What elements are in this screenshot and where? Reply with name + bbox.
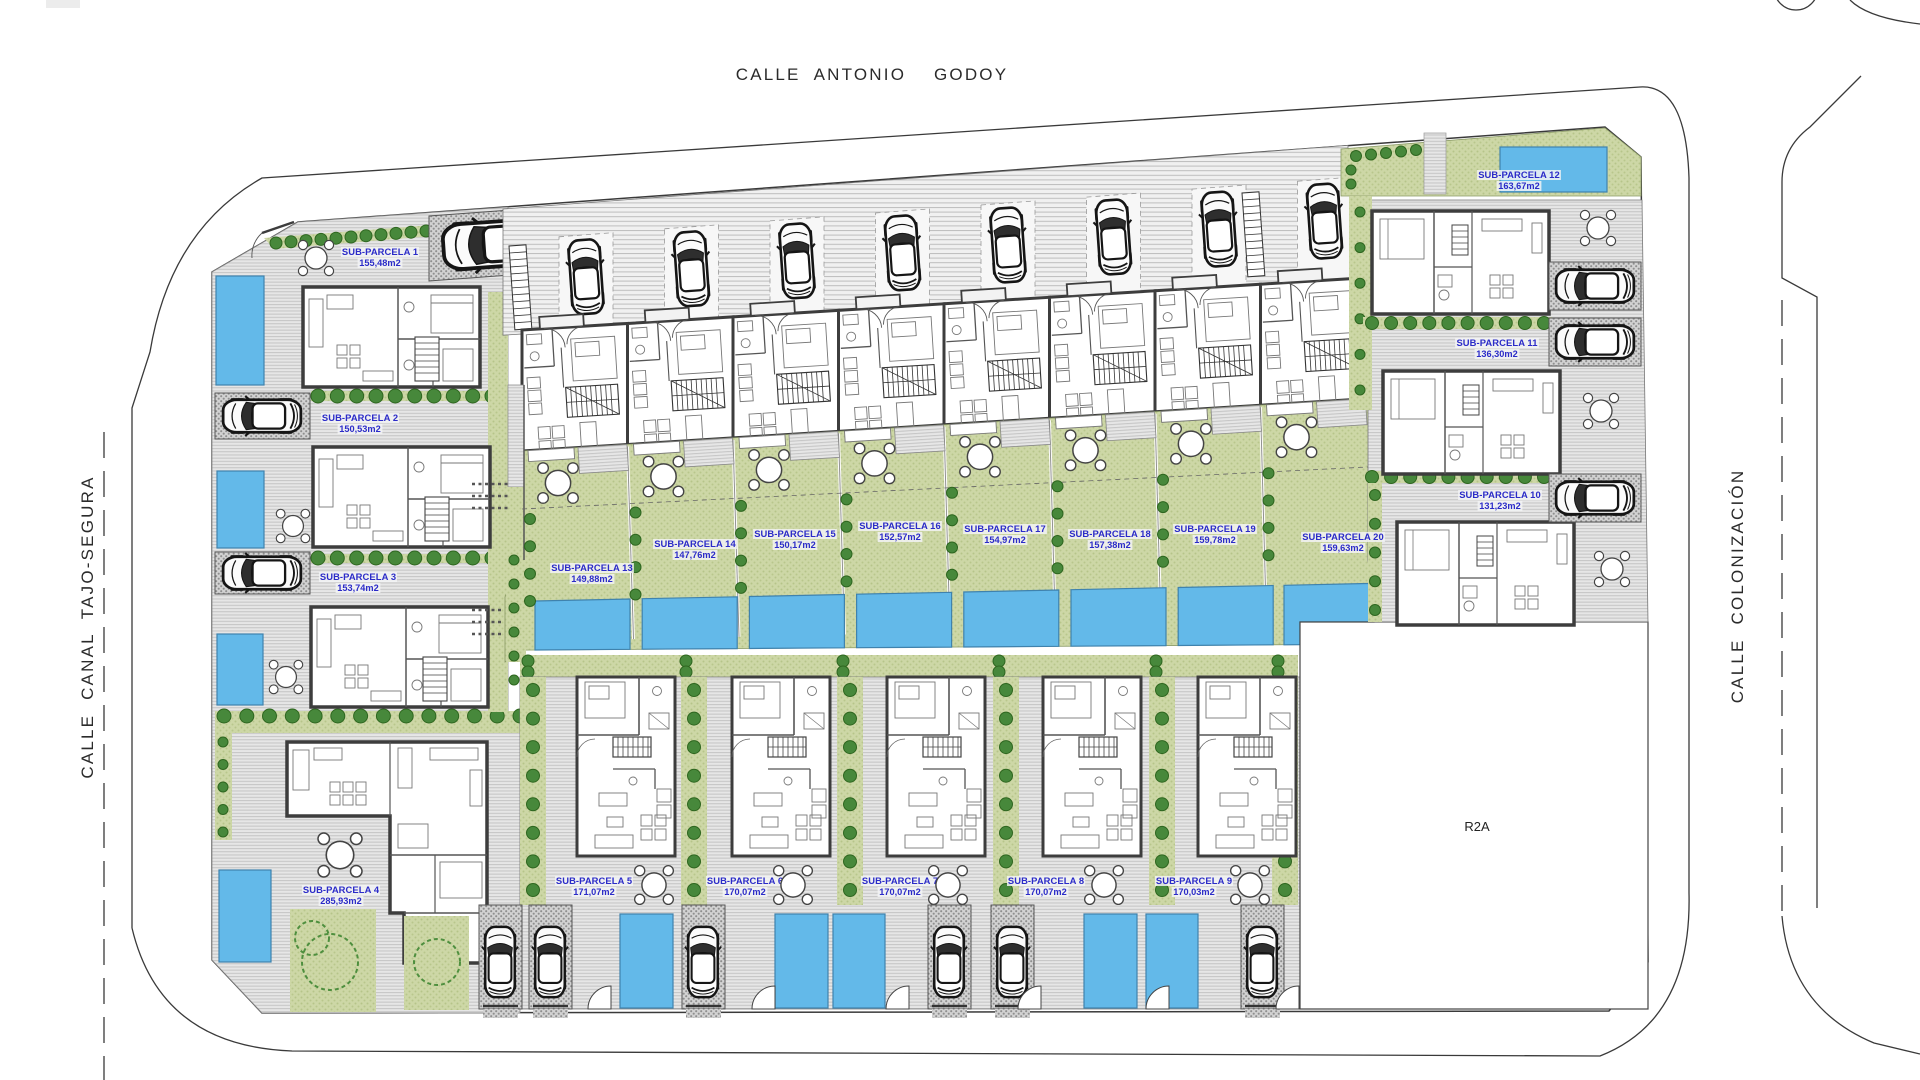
svg-text:285,93m2: 285,93m2 [320, 896, 361, 906]
svg-text:SUB-PARCELA 18: SUB-PARCELA 18 [1069, 528, 1151, 539]
svg-text:SUB-PARCELA 16: SUB-PARCELA 16 [859, 520, 941, 531]
svg-text:157,38m2: 157,38m2 [1089, 540, 1130, 550]
svg-text:170,07m2: 170,07m2 [1025, 887, 1066, 897]
svg-text:154,97m2: 154,97m2 [984, 535, 1025, 545]
svg-text:136,30m2: 136,30m2 [1476, 349, 1517, 359]
svg-text:SUB-PARCELA 6: SUB-PARCELA 6 [707, 875, 783, 886]
svg-text:SUB-PARCELA 14: SUB-PARCELA 14 [654, 538, 736, 549]
svg-text:SUB-PARCELA 15: SUB-PARCELA 15 [754, 528, 836, 539]
svg-text:150,17m2: 150,17m2 [774, 540, 815, 550]
svg-text:163,67m2: 163,67m2 [1498, 181, 1539, 191]
svg-text:131,23m2: 131,23m2 [1479, 501, 1520, 511]
svg-text:170,03m2: 170,03m2 [1173, 887, 1214, 897]
svg-text:155,48m2: 155,48m2 [359, 258, 400, 268]
svg-text:SUB-PARCELA 4: SUB-PARCELA 4 [303, 884, 380, 895]
svg-text:SUB-PARCELA 13: SUB-PARCELA 13 [551, 562, 633, 573]
svg-text:SUB-PARCELA 3: SUB-PARCELA 3 [320, 571, 396, 582]
svg-text:SUB-PARCELA 20: SUB-PARCELA 20 [1302, 531, 1384, 542]
svg-text:153,74m2: 153,74m2 [337, 583, 378, 593]
svg-text:159,78m2: 159,78m2 [1194, 535, 1235, 545]
svg-text:CALLE COLONIZACIÓN: CALLE COLONIZACIÓN [1728, 469, 1747, 704]
svg-text:SUB-PARCELA 12: SUB-PARCELA 12 [1478, 169, 1560, 180]
svg-text:149,88m2: 149,88m2 [571, 574, 612, 584]
svg-text:SUB-PARCELA 17: SUB-PARCELA 17 [964, 523, 1046, 534]
svg-text:152,57m2: 152,57m2 [879, 532, 920, 542]
svg-text:170,07m2: 170,07m2 [879, 887, 920, 897]
svg-text:SUB-PARCELA 9: SUB-PARCELA 9 [1156, 875, 1232, 886]
svg-text:SUB-PARCELA 1: SUB-PARCELA 1 [342, 246, 418, 257]
svg-text:159,63m2: 159,63m2 [1322, 543, 1363, 553]
svg-text:CALLE ANTONIO GODOY: CALLE ANTONIO GODOY [736, 65, 1009, 84]
svg-text:SUB-PARCELA 5: SUB-PARCELA 5 [556, 875, 632, 886]
svg-text:SUB-PARCELA 7: SUB-PARCELA 7 [862, 875, 938, 886]
svg-text:SUB-PARCELA 19: SUB-PARCELA 19 [1174, 523, 1256, 534]
svg-text:SUB-PARCELA 2: SUB-PARCELA 2 [322, 412, 398, 423]
svg-text:147,76m2: 147,76m2 [674, 550, 715, 560]
svg-text:170,07m2: 170,07m2 [724, 887, 765, 897]
svg-text:SUB-PARCELA 11: SUB-PARCELA 11 [1456, 337, 1537, 348]
svg-text:R2A: R2A [1464, 819, 1490, 834]
svg-text:SUB-PARCELA 10: SUB-PARCELA 10 [1459, 489, 1541, 500]
svg-text:SUB-PARCELA 8: SUB-PARCELA 8 [1008, 875, 1084, 886]
svg-text:CALLE CANAL TAJO-SEGURA: CALLE CANAL TAJO-SEGURA [78, 475, 97, 778]
svg-text:171,07m2: 171,07m2 [573, 887, 614, 897]
svg-text:150,53m2: 150,53m2 [339, 424, 380, 434]
